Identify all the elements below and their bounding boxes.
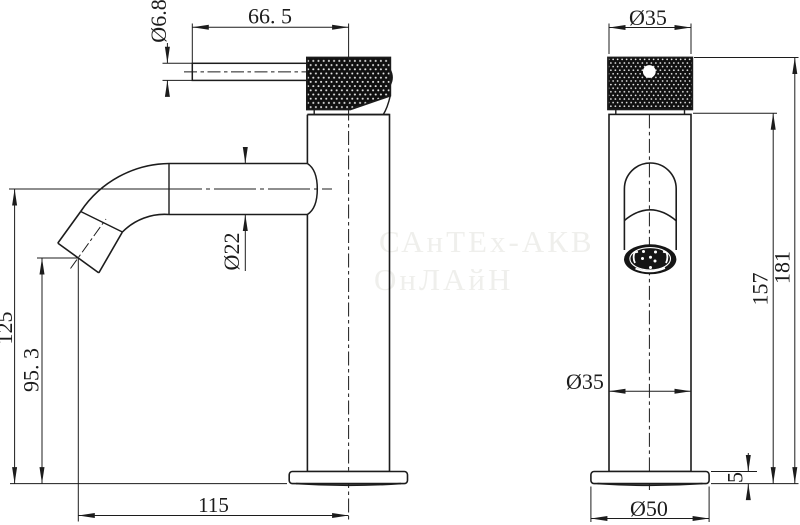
svg-text:95. 3: 95. 3: [19, 348, 44, 392]
svg-text:Ø22: Ø22: [219, 233, 244, 271]
svg-text:66. 5: 66. 5: [248, 4, 292, 29]
svg-text:Ø35: Ø35: [629, 5, 667, 30]
svg-text:5: 5: [723, 472, 748, 483]
svg-text:ОнЛАйН: ОнЛАйН: [374, 262, 513, 297]
svg-text:Ø50: Ø50: [630, 496, 668, 521]
svg-text:181: 181: [770, 251, 795, 284]
svg-text:Ø6.8: Ø6.8: [146, 0, 171, 43]
svg-text:САнТЕх-АКВ: САнТЕх-АКВ: [379, 224, 595, 259]
svg-text:Ø35: Ø35: [566, 369, 604, 394]
svg-text:115: 115: [198, 493, 229, 517]
